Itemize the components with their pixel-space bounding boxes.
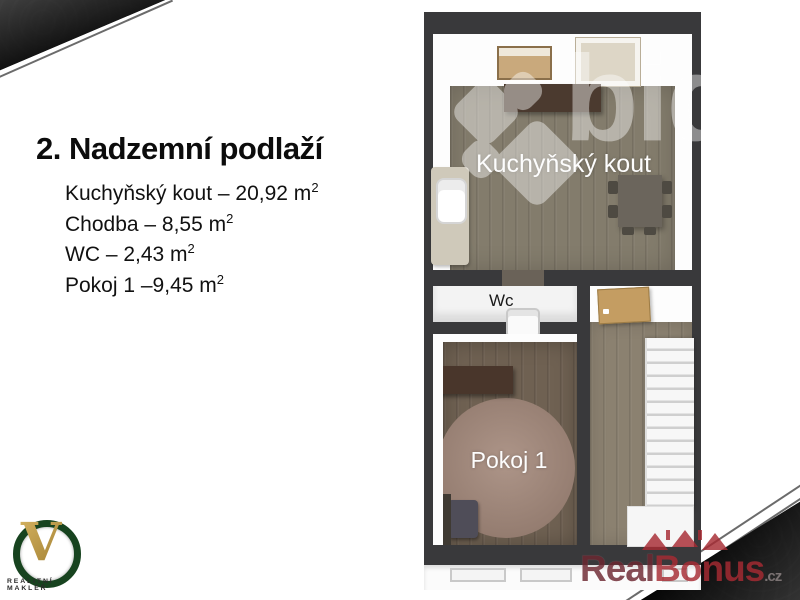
realbonus-text-cz: .cz <box>764 568 781 585</box>
room-list: Kuchyňský kout – 20,92 m2Chodba – 8,55 m… <box>65 176 319 298</box>
cabinet <box>443 494 451 545</box>
wall-kitchen-divider <box>433 270 692 286</box>
staircase <box>645 338 694 510</box>
room-area-line: WC – 2,43 m2 <box>65 237 319 268</box>
wall-wc-bottom <box>424 322 577 334</box>
room-area-line: Kuchyňský kout – 20,92 m2 <box>65 176 319 207</box>
room-area-line: Pokoj 1 –9,45 m2 <box>65 268 319 299</box>
chimney-icon <box>666 530 670 540</box>
realbonus-text-bonus: Bonus <box>654 548 764 589</box>
agent-logo-letter: V <box>15 512 67 573</box>
room-wc: Wc <box>433 286 577 322</box>
realbonus-text-real: Real <box>580 548 654 589</box>
roof-icon <box>672 530 698 547</box>
open-door <box>597 287 651 325</box>
room-area-line: Chodba – 8,55 m2 <box>65 207 319 238</box>
doorway-opening <box>502 270 544 286</box>
slide-title: 2. Nadzemní podlaží <box>36 131 323 167</box>
realbonus-roofs-icon <box>638 526 734 550</box>
wall-left <box>424 12 433 565</box>
desk <box>443 366 513 394</box>
window-outline <box>520 568 572 582</box>
floor-plan: Kuchyňský kout Wc Pokoj 1 <box>424 10 701 590</box>
bid-watermark-text: bid <box>564 28 701 168</box>
presentation-slide: 2. Nadzemní podlaží Kuchyňský kout – 20,… <box>0 0 800 600</box>
realbonus-logo-text: RealBonus.cz <box>580 548 781 590</box>
chair <box>644 227 656 235</box>
pokoj1-floor <box>443 342 577 545</box>
window-outline <box>450 568 506 582</box>
armchair <box>448 500 478 538</box>
pokoj1-label: Pokoj 1 <box>449 447 569 474</box>
chair <box>622 227 634 235</box>
wall-hallway-divider <box>577 270 590 545</box>
bid-watermark: bid <box>442 56 701 226</box>
agent-logo-caption: REALITNÍ MAKLÉŘ <box>7 578 83 592</box>
door-handle <box>603 309 609 314</box>
chimney-icon <box>698 530 702 540</box>
realbonus-watermark: RealBonus.cz <box>580 524 800 594</box>
bid-logo-mark-icon <box>457 135 505 183</box>
